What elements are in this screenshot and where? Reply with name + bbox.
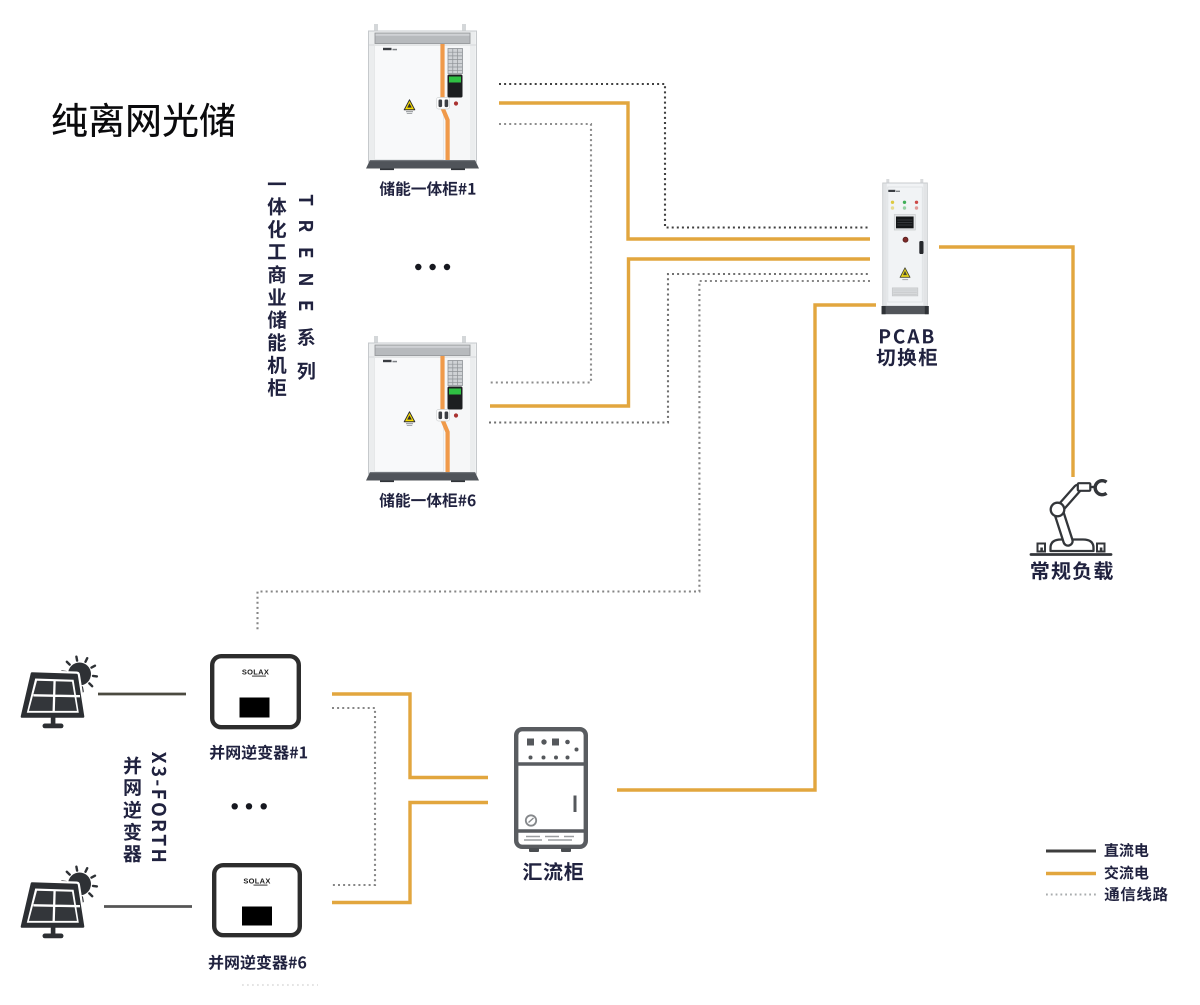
svg-text:SOLAX: SOLAX xyxy=(242,668,269,677)
svg-text:SOLAX: SOLAX xyxy=(243,877,270,886)
